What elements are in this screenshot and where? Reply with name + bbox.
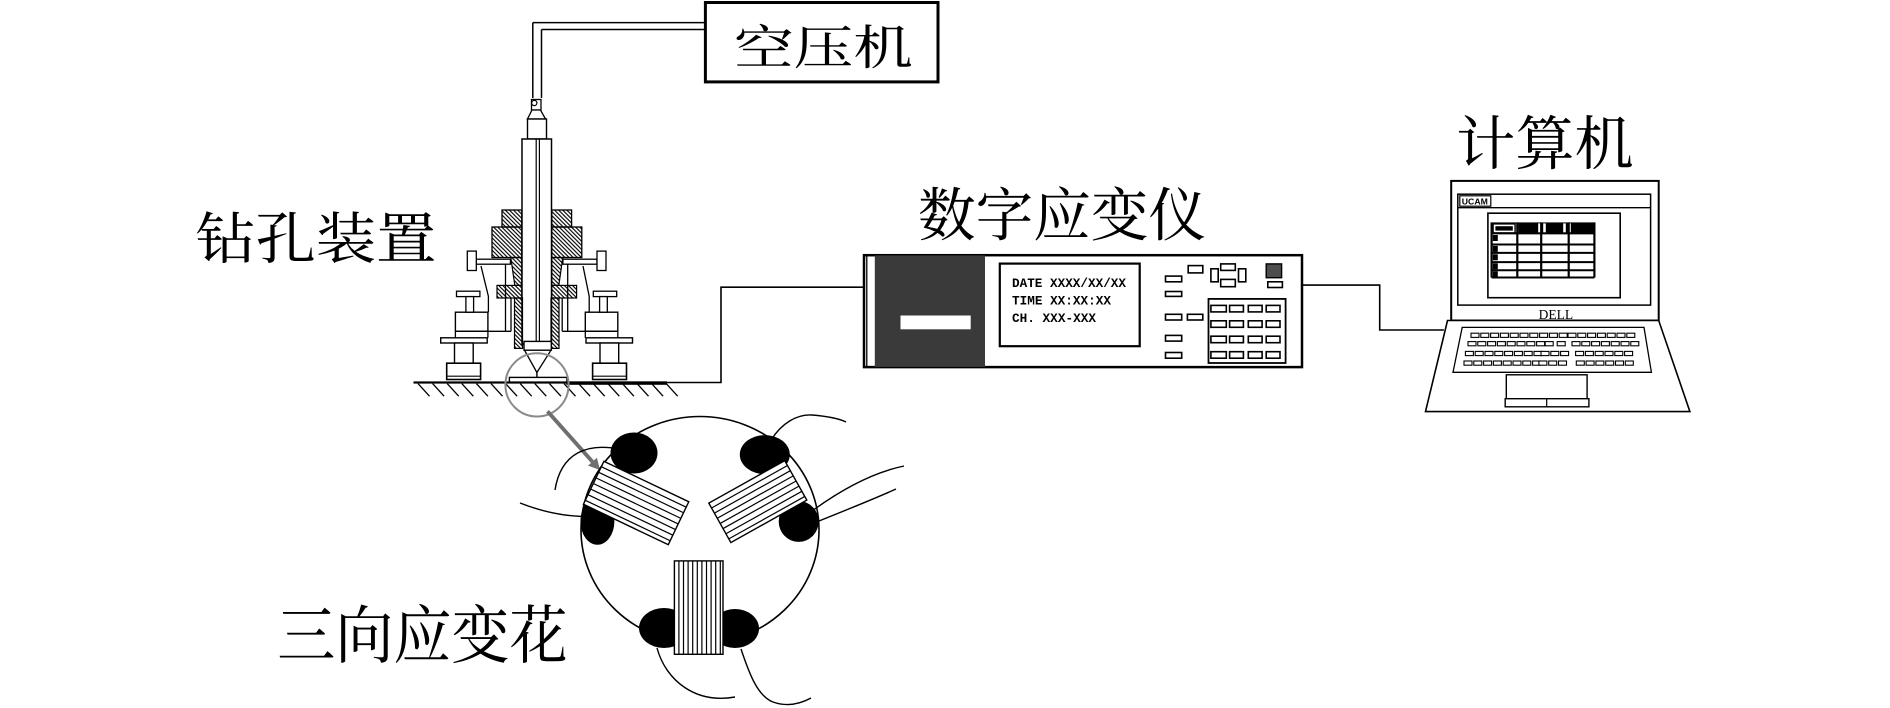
svg-text:DATE XXXX/XX/XX: DATE XXXX/XX/XX	[1012, 277, 1126, 291]
svg-text:UCAM: UCAM	[1462, 196, 1488, 206]
svg-text:CH. XXX-XXX: CH. XXX-XXX	[1012, 312, 1097, 326]
svg-text:TIME XX:XX:XX: TIME XX:XX:XX	[1012, 295, 1111, 309]
svg-text:DELL: DELL	[1539, 307, 1574, 322]
